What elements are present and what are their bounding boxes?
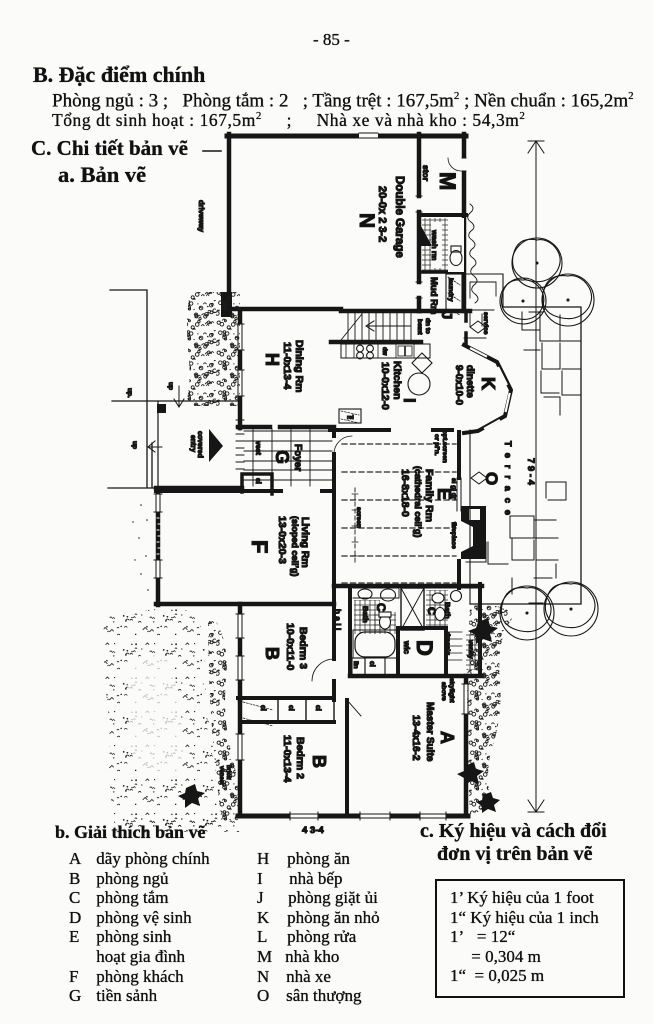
- svg-text:above: above: [440, 682, 447, 701]
- svg-text:bsmt: bsmt: [416, 319, 423, 335]
- svg-text:N: N: [355, 213, 378, 228]
- svg-text:10-0x11-0: 10-0x11-0: [284, 623, 296, 670]
- svg-text:4 3-4: 4 3-4: [302, 825, 324, 836]
- svg-text:dw: dw: [381, 347, 387, 356]
- svg-text:cl: cl: [259, 705, 266, 711]
- svg-text:opt.screen: opt.screen: [441, 430, 448, 463]
- svg-text:skylight: skylight: [448, 678, 455, 703]
- svg-text:screen: screen: [355, 507, 362, 528]
- svg-text:or pl’n.: or pl’n.: [433, 434, 440, 456]
- svg-text:M: M: [435, 172, 460, 190]
- svg-text:16-8x18-0: 16-8x18-0: [399, 469, 411, 517]
- svg-text:K: K: [478, 377, 498, 390]
- svg-text:vest: vest: [254, 441, 261, 456]
- svg-text:I: I: [400, 398, 419, 403]
- svg-text:Terrace: Terrace: [503, 441, 513, 522]
- svg-text:Bath: Bath: [443, 602, 452, 619]
- svg-text:Bath: Bath: [361, 606, 370, 623]
- svg-text:(sloped ceil’g): (sloped ceil’g): [290, 516, 300, 577]
- svg-text:wash rm: wash rm: [430, 229, 439, 261]
- svg-text:B: B: [262, 647, 282, 660]
- svg-text:Dining Rm: Dining Rm: [293, 340, 305, 393]
- svg-text:rel: rel: [347, 415, 354, 421]
- svg-text:O: O: [482, 472, 501, 485]
- svg-text:F: F: [247, 540, 272, 553]
- svg-text:dinette: dinette: [464, 365, 475, 398]
- svg-text:B: B: [309, 755, 329, 768]
- svg-text:stor: stor: [421, 165, 431, 182]
- svg-text:cl: cl: [314, 705, 321, 711]
- svg-text:entry: entry: [189, 435, 196, 452]
- svg-text:11-0x13-4: 11-0x13-4: [281, 735, 293, 782]
- svg-text:Family Rm: Family Rm: [423, 469, 435, 522]
- svg-text:9-0x10-0: 9-0x10-0: [453, 365, 464, 405]
- svg-text:sl gl dr: sl gl dr: [450, 478, 457, 500]
- svg-text:Foyer: Foyer: [292, 444, 303, 471]
- svg-text:7 9 - 4: 7 9 - 4: [525, 458, 536, 486]
- svg-text:service: service: [482, 312, 489, 335]
- svg-text:(cathedral ceil’g): (cathedral ceil’g): [413, 466, 423, 538]
- svg-text:fireplace: fireplace: [450, 522, 457, 549]
- svg-text:Master Suite: Master Suite: [424, 702, 435, 762]
- svg-text:10-0x12-0: 10-0x12-0: [379, 362, 391, 410]
- svg-text:cl: cl: [368, 661, 375, 667]
- svg-text:up.: up.: [126, 388, 133, 398]
- svg-text:H: H: [262, 353, 282, 366]
- svg-text:lin: lin: [352, 661, 359, 669]
- svg-text:D: D: [412, 640, 437, 656]
- svg-text:13-0x20-3: 13-0x20-3: [276, 516, 288, 564]
- svg-text:cl: cl: [287, 705, 294, 711]
- svg-text:wic: wic: [402, 640, 411, 654]
- svg-text:covered: covered: [196, 431, 203, 458]
- svg-text:laundry: laundry: [447, 278, 454, 302]
- svg-text:13-4x16-2: 13-4x16-2: [410, 715, 421, 761]
- svg-text:Kitchen: Kitchen: [391, 361, 403, 400]
- svg-text:dn to: dn to: [424, 318, 431, 334]
- svg-text:cl: cl: [254, 478, 261, 484]
- svg-text:Bedrm 3: Bedrm 3: [297, 627, 309, 669]
- svg-text:Bedrm 2: Bedrm 2: [294, 737, 306, 779]
- svg-text:Double Garage: Double Garage: [393, 176, 405, 258]
- svg-text:hall: hall: [333, 609, 342, 633]
- svg-text:up: up: [167, 382, 174, 390]
- svg-text:C: C: [425, 607, 437, 615]
- svg-text:dress’g: dress’g: [444, 632, 451, 655]
- svg-text:up: up: [131, 441, 138, 449]
- svg-text:C: C: [374, 603, 388, 612]
- svg-text:G: G: [272, 450, 292, 464]
- svg-text:A: A: [437, 731, 457, 744]
- svg-text:driveway: driveway: [197, 200, 206, 233]
